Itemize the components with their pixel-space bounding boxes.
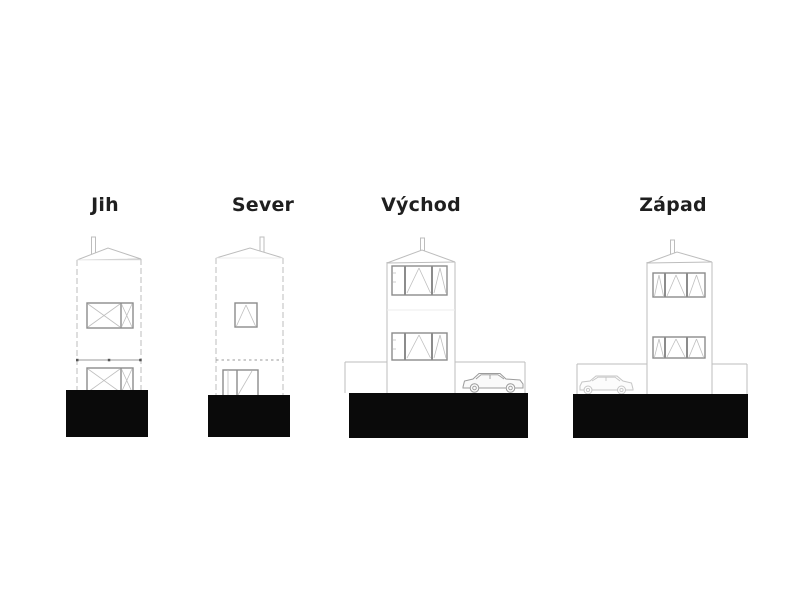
window-band-upper (653, 273, 705, 297)
ground-mass (208, 395, 290, 437)
house-west (573, 240, 748, 438)
elevation-drawing-south (55, 230, 165, 445)
fence-right (712, 364, 747, 394)
elevation-drawing-west (560, 230, 770, 445)
elevation-drawing-north (195, 230, 305, 445)
parked-car (463, 374, 523, 393)
gable-roof (647, 252, 712, 263)
house-south (66, 237, 148, 437)
gable-roof (216, 248, 283, 258)
ground-mass (66, 390, 148, 437)
window-square (235, 303, 257, 327)
window-band-lower (653, 337, 705, 358)
floor-line (76, 359, 142, 362)
house-east (345, 238, 528, 438)
elevation-label-east: Východ (381, 194, 461, 216)
fence-left (345, 362, 387, 393)
window-upper (87, 303, 133, 328)
elevations-sheet: Jih Sever Východ Západ (0, 0, 800, 600)
house-north (208, 237, 290, 437)
gable-roof (387, 250, 455, 263)
elevation-drawing-east (335, 230, 545, 445)
window-band-lower (392, 333, 447, 360)
elevation-label-west: Západ (639, 194, 707, 216)
parked-car (580, 376, 633, 394)
ground-mass (349, 393, 528, 438)
elevation-label-north: Sever (232, 194, 294, 216)
elevation-label-south: Jih (91, 194, 119, 216)
window-band-upper (392, 266, 447, 295)
gable-roof (77, 248, 141, 260)
ground-mass (573, 394, 748, 438)
entry-door (223, 370, 258, 396)
chimney-icon (671, 240, 675, 254)
